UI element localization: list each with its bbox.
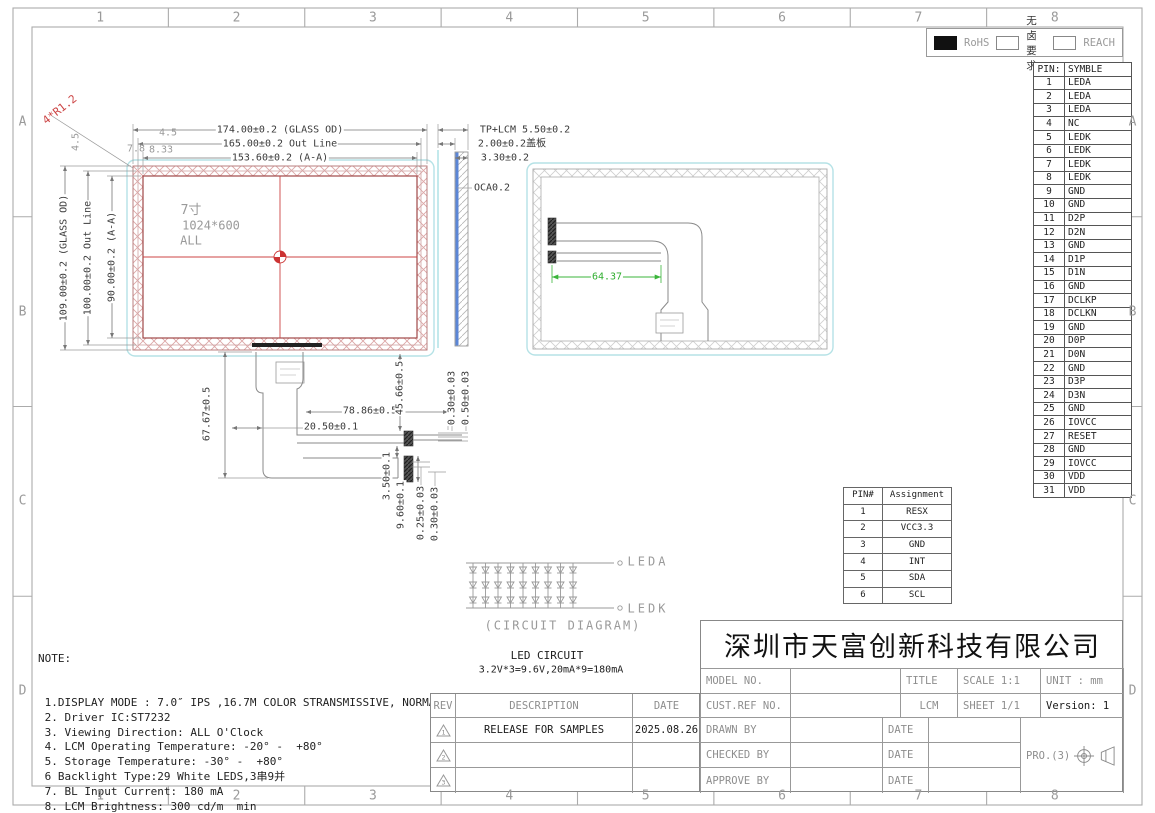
notes-heading: NOTE: (38, 652, 495, 667)
zone-letter: B (1129, 304, 1137, 319)
back-view-drawing (527, 163, 833, 355)
assignment-table-header: PIN# Assignment (844, 488, 952, 505)
pin-table-header: PIN: SYMBLE (1034, 63, 1132, 77)
zone-number: 4 (505, 788, 513, 803)
led-circuit-title: LED CIRCUIT (510, 650, 585, 662)
zone-number: 2 (233, 10, 241, 25)
drawn-by-label: DRAWN BY (701, 718, 791, 743)
ctp-assignment-table: PIN# Assignment 1RESX2VCC3.33GND4INT5SDA… (843, 487, 952, 604)
note-line: 4. LCM Operating Temperature: -20° - +80… (38, 740, 495, 755)
pin-row: 2LEDA (1034, 90, 1132, 104)
zone-number: 5 (642, 10, 650, 25)
zone-number: 4 (505, 10, 513, 25)
pin-row: 17DCLKP (1034, 294, 1132, 308)
projection-cell: PRO.(3) (1021, 718, 1124, 793)
assignment-row: 2VCC3.3 (844, 521, 952, 538)
dim-fpc-length: 67.67±0.5 (202, 386, 213, 442)
panel-resolution-label: 1024*600 (181, 219, 241, 232)
approve-date-value (929, 768, 1021, 793)
zone-letter: C (1129, 494, 1137, 509)
symbol-header: SYMBLE (1065, 63, 1132, 77)
svg-text:3: 3 (441, 779, 445, 787)
pin-row: 22GND (1034, 362, 1132, 376)
zone-number: 3 (369, 788, 377, 803)
checked-date-label: DATE (883, 743, 929, 768)
title-value: LCM (901, 694, 958, 718)
revision-table: REV DESCRIPTION DATE 1RELEASE FOR SAMPLE… (430, 693, 700, 792)
drawing-sheet: .cy{fill:none;stroke:#b5e2e6;stroke-widt… (0, 0, 1155, 813)
zone-number: 5 (642, 788, 650, 803)
company-name: 深圳市天富创新科技有限公司 (701, 621, 1124, 669)
dim-lcm-thickness: 3.30±0.2 (480, 153, 530, 164)
pin-row: 6LEDK (1034, 144, 1132, 158)
assignment-pin-header: PIN# (844, 488, 883, 505)
pin-row: 27RESET (1034, 430, 1132, 444)
dim-active-width: 153.60±0.2 (A-A) (231, 153, 329, 164)
zone-number: 6 (778, 788, 786, 803)
dim-active-height: 90.00±0.2 (A-A) (107, 211, 118, 303)
dim-back-width: 64.37 (591, 272, 623, 283)
unit-label: UNIT : mm (1041, 669, 1124, 694)
dim-corner-d: 4.5 (71, 132, 82, 152)
led-circuit-diagram (466, 561, 622, 610)
zone-letter: D (1129, 684, 1137, 699)
pin-row: 25GND (1034, 402, 1132, 416)
zone-letter: C (19, 494, 27, 509)
assignment-header: Assignment (883, 488, 952, 505)
zone-number: 8 (1051, 788, 1059, 803)
dim-tp-lcm-thickness: TP+LCM 5.50±0.2 (479, 125, 571, 136)
dim-stiffener-d: 0.30±0.03 (430, 486, 441, 542)
pin-row: 7LEDK (1034, 158, 1132, 172)
approve-by-value (791, 768, 883, 793)
rev-header: REV (431, 694, 456, 718)
pin-row: 29IOVCC (1034, 457, 1132, 471)
drawn-date-label: DATE (883, 718, 929, 743)
version-label: Version: 1 (1041, 694, 1124, 718)
zone-letter: A (19, 114, 27, 129)
rev-description (456, 743, 633, 768)
rev-description (456, 768, 633, 793)
title-block: 深圳市天富创新科技有限公司 MODEL NO. TITLE SCALE 1:1 … (700, 620, 1123, 792)
rev-mark: 3 (431, 768, 456, 793)
halogen-free-checkbox (996, 36, 1019, 50)
pin-row: 21D0N (1034, 348, 1132, 362)
model-no-label: MODEL NO. (701, 669, 791, 694)
description-header: DESCRIPTION (456, 694, 633, 718)
rohs-label: RoHS (964, 37, 989, 49)
pin-row: 12D2N (1034, 226, 1132, 240)
dim-stiffener-c: 0.25±0.03 (416, 485, 427, 541)
assignment-row: 5SDA (844, 570, 952, 587)
zone-number: 7 (915, 788, 923, 803)
checked-by-value (791, 743, 883, 768)
model-no-value (791, 669, 901, 694)
checked-by-label: CHECKED BY (701, 743, 791, 768)
dim-fpc-width: 78.86±0.5 (342, 406, 398, 417)
dim-oca-thickness: OCA0.2 (473, 183, 511, 194)
dim-stiffener-a: 3.50±0.1 (382, 451, 393, 501)
cust-ref-value (791, 694, 901, 718)
pin-row: 20D0P (1034, 334, 1132, 348)
dim-corner-c: 8.33 (148, 145, 174, 156)
pin-row: 31VDD (1034, 484, 1132, 498)
zone-number: 2 (233, 788, 241, 803)
dim-thickness-b: 0.50±0.03 (461, 370, 472, 426)
ledk-label: LEDK (627, 602, 670, 615)
pin-row: 18DCLKN (1034, 307, 1132, 321)
zone-number: 7 (915, 10, 923, 25)
pin-row: 1LEDA (1034, 76, 1132, 90)
led-circuit-spec: 3.2V*3=9.6V,20mA*9=180mA (478, 665, 625, 676)
pin-row: 13GND (1034, 239, 1132, 253)
compliance-legend: RoHS 无卤要求 REACH (926, 28, 1123, 57)
pin-row: 5LEDK (1034, 130, 1132, 144)
zone-number: 8 (1051, 10, 1059, 25)
pin-row: 16GND (1034, 280, 1132, 294)
rev-mark: 1 (431, 718, 456, 743)
rev-description: RELEASE FOR SAMPLES (456, 718, 633, 743)
zone-number: 3 (369, 10, 377, 25)
assignment-row: 6SCL (844, 587, 952, 604)
pin-row: 26IOVCC (1034, 416, 1132, 430)
pin-row: 14D1P (1034, 253, 1132, 267)
zone-letter: B (19, 304, 27, 319)
zone-letter: D (19, 684, 27, 699)
pin-row: 3LEDA (1034, 103, 1132, 117)
scale-label: SCALE 1:1 (958, 669, 1041, 694)
pin-row: 30VDD (1034, 470, 1132, 484)
dim-glass-height: 109.00±0.2 (GLASS OD) (59, 194, 70, 322)
pin-row: 28GND (1034, 443, 1132, 457)
projection-label: PRO.(3) (1026, 750, 1070, 762)
reach-checkbox (1053, 36, 1076, 50)
sheet-label: SHEET 1/1 (958, 694, 1041, 718)
dim-glass-width: 174.00±0.2 (GLASS OD) (216, 125, 344, 136)
panel-mode-label: ALL (179, 234, 203, 247)
drawn-date-value (929, 718, 1021, 743)
zone-number: 6 (778, 10, 786, 25)
drawn-by-value (791, 718, 883, 743)
rev-date (633, 743, 701, 768)
side-view-drawing (438, 124, 472, 348)
pin-row: 23D3P (1034, 375, 1132, 389)
dim-corner-b: 7.8 (126, 144, 146, 155)
assignment-row: 4INT (844, 554, 952, 571)
pin-row: 15D1N (1034, 266, 1132, 280)
pin-row: 4NC (1034, 117, 1132, 131)
dim-thickness-a: 0.30±0.03 (447, 370, 458, 426)
notes-block: NOTE: 1.DISPLAY MODE : 7.0″ IPS ,16.7M C… (38, 622, 495, 813)
note-line: 2. Driver IC:ST7232 (38, 711, 495, 726)
zone-number: 1 (96, 788, 104, 803)
note-line: 1.DISPLAY MODE : 7.0″ IPS ,16.7M COLOR S… (38, 696, 495, 711)
svg-text:2: 2 (441, 753, 445, 761)
note-line: 8. LCM Brightness: 300 cd/m min (38, 800, 495, 813)
pin-row: 19GND (1034, 321, 1132, 335)
pin-row: 8LEDK (1034, 171, 1132, 185)
zone-letter: A (1129, 114, 1137, 129)
assignment-row: 3GND (844, 537, 952, 554)
pin-row: 24D3N (1034, 389, 1132, 403)
checked-date-value (929, 743, 1021, 768)
dim-outline-width: 165.00±0.2 Out Line (222, 139, 338, 150)
note-line: 3. Viewing Direction: ALL O'Clock (38, 726, 495, 741)
pin-symbol-table: PIN: SYMBLE 1LEDA2LEDA3LEDA4NC5LEDK6LEDK… (1033, 62, 1132, 498)
note-line: 7. BL Input Current: 180 mA (38, 785, 495, 800)
dim-outline-height: 100.00±0.2 Out Line (83, 200, 94, 316)
zone-number: 1 (96, 10, 104, 25)
dim-connector-offset: 45.66±0.5 (395, 360, 406, 416)
dim-corner-a: 4.5 (158, 128, 178, 139)
date-header: DATE (633, 694, 701, 718)
rev-mark: 2 (431, 743, 456, 768)
note-line: 6 Backlight Type:29 White LEDS,3串9并 (38, 770, 495, 785)
panel-size-label: 7寸 (180, 204, 203, 218)
circuit-diagram-caption: (CIRCUIT DIAGRAM) (484, 619, 643, 632)
dim-stiffener-b: 9.60±0.1 (396, 480, 407, 530)
pin-row: 11D2P (1034, 212, 1132, 226)
svg-text:1: 1 (441, 728, 445, 736)
pin-row: 9GND (1034, 185, 1132, 199)
pin-row: 10GND (1034, 198, 1132, 212)
dim-cover-thickness: 2.00±0.2盖板 (477, 139, 547, 150)
third-angle-projection-icon (1074, 741, 1118, 771)
front-view-drawing (127, 160, 462, 482)
cust-ref-label: CUST.REF NO. (701, 694, 791, 718)
reach-label: REACH (1083, 37, 1115, 49)
note-line: 5. Storage Temperature: -30° - +80° (38, 755, 495, 770)
title-label: TITLE (901, 669, 958, 694)
leda-label: LEDA (627, 555, 670, 568)
rohs-checkbox (934, 36, 957, 50)
rev-date: 2025.08.26 (633, 718, 701, 743)
dim-fpc-offset: 20.50±0.1 (303, 422, 359, 433)
pin-header: PIN: (1034, 63, 1065, 77)
assignment-row: 1RESX (844, 504, 952, 521)
